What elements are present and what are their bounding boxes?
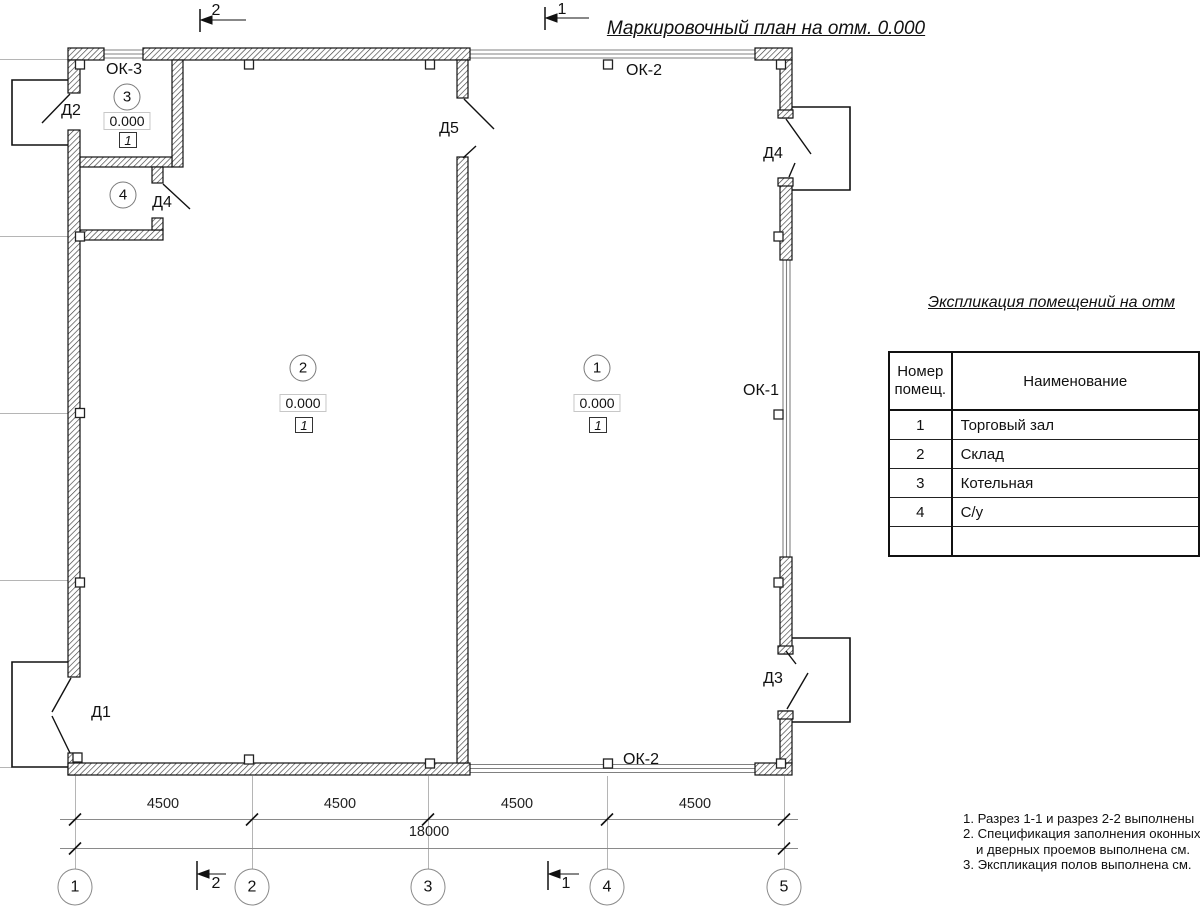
column-marker [774,410,783,419]
table-title: Экспликация помещений на отм [928,294,1175,312]
column-marker [774,232,783,241]
section-1-top-label: 1 [558,1,567,19]
wall-segment [755,48,792,60]
column-marker [73,753,82,762]
wall-segment [172,60,183,167]
door-d5-swing [463,146,476,158]
room-name-cell: Склад [952,440,1199,469]
column-marker [774,578,783,587]
door-label-d5: Д5 [439,120,459,138]
room-name-cell: С/у [952,498,1199,527]
window-ok2-top [470,50,755,58]
header-number-line2: помещ. [894,381,946,398]
door-d4-swing [786,119,811,154]
section-2-top-label: 2 [212,2,221,20]
door-jamb [778,646,793,654]
window-label-ok2-bottom: ОК-2 [623,751,659,769]
wall-segment [780,557,792,654]
section-1-bottom-arrowhead [549,870,560,878]
note-line: 1. Разрез 1-1 и разрез 2-2 выполнены [963,811,1200,826]
door-jamb [778,110,793,118]
room-num-cell: 3 [889,469,952,498]
table-row: 2 Склад [889,440,1199,469]
section-2-bottom-label: 2 [212,875,221,893]
drawing-title: Маркировочный план на отм. 0.000 [607,18,925,40]
table-header-row: Номерпомещ. Наименование [889,352,1199,410]
room-1-number: 1 [584,355,611,382]
wall-segment [80,157,172,167]
wall-segment [152,218,163,230]
window-ok3 [104,50,143,58]
door-label-d2: Д2 [61,102,81,120]
wall-segment [457,60,468,98]
window-label-ok2-top: ОК-2 [626,62,662,80]
column-marker [777,60,786,69]
door-swings [42,94,811,753]
room-2-elevation: 0.000 [279,394,326,412]
section-2-bottom-arrowhead [198,870,209,878]
note-line: 3. Экспликация полов выполнена см. [963,857,1200,872]
note-line: 2. Спецификация заполнения оконных [963,826,1200,841]
dim-4500-4: 4500 [679,796,711,812]
header-number-line1: Номер [897,363,943,380]
door-label-d4: Д4 [763,145,783,163]
porch-d2 [12,80,68,145]
room-2-number: 2 [290,355,317,382]
table-header-number: Номерпомещ. [889,352,952,410]
column-marker [245,60,254,69]
column-marker [76,60,85,69]
notes-block: 1. Разрез 1-1 и разрез 2-2 выполнены 2. … [963,811,1200,873]
column-marker [604,60,613,69]
section-marks [197,7,589,890]
porches [12,80,850,767]
column-marker [76,232,85,241]
porch-d1 [12,662,68,767]
door-d1-swing [52,716,70,753]
porch-d4 [792,107,850,190]
wall-segment [80,230,163,240]
table-row: 1 Торговый зал [889,410,1199,440]
dim-total-18000: 18000 [409,824,449,840]
wall-segment [780,178,792,260]
table-empty-row [889,527,1199,557]
window-label-ok3: ОК-3 [106,61,142,79]
dim-4500-3: 4500 [501,796,533,812]
grid-lines [0,60,785,871]
room-3-elevation: 0.000 [103,112,150,130]
room-num-cell: 4 [889,498,952,527]
wall-segment [68,48,104,60]
door-label-d3: Д3 [763,670,783,688]
section-1-bottom-label: 1 [562,875,571,893]
section-2-top-arrowhead [201,16,212,24]
column-marker [604,759,613,768]
wall-segment [68,763,470,775]
door-jamb [778,178,793,186]
empty-cell [952,527,1199,557]
door-jamb [778,711,793,719]
column-marker [426,759,435,768]
room-name-cell: Торговый зал [952,410,1199,440]
wall-segment [143,48,470,60]
windows [104,50,790,773]
door-label-d1: Д1 [91,704,111,722]
section-1-top-arrowhead [546,14,557,22]
note-line-continuation: и дверных проемов выполнена см. [976,842,1200,857]
room-num-cell: 1 [889,410,952,440]
column-marker [245,755,254,764]
porch-d3 [792,638,850,722]
room-schedule-table: Номерпомещ. Наименование 1 Торговый зал … [888,351,1200,557]
column-marker [76,578,85,587]
wall-segment [68,130,80,677]
door-d5-swing [464,99,494,129]
room-name-cell: Котельная [952,469,1199,498]
column-marker [777,759,786,768]
wall-segment [152,167,163,183]
column-marker [76,409,85,418]
table-row: 3 Котельная [889,469,1199,498]
room-3-number: 3 [114,84,141,111]
door-d4-swing [789,163,795,177]
wall-segment [457,157,468,763]
drawing-sheet: { "title": "Маркировочный план на отм. 0… [0,0,1200,900]
table-header-name: Наименование [952,352,1199,410]
room-4-number: 4 [110,182,137,209]
room-2-floor-type: 1 [295,417,313,433]
empty-cell [889,527,952,557]
door-d3-swing [787,673,808,709]
door-label-d4-wc: Д4 [152,194,172,212]
room-1-floor-type: 1 [589,417,607,433]
table-row: 4 С/у [889,498,1199,527]
room-1-elevation: 0.000 [573,394,620,412]
walls [68,48,793,775]
dim-4500-2: 4500 [324,796,356,812]
dim-4500-1: 4500 [147,796,179,812]
wall-segment [755,763,792,775]
window-ok1 [783,260,790,557]
window-label-ok1: ОК-1 [743,382,779,400]
room-3-floor-type: 1 [119,132,137,148]
column-marker [426,60,435,69]
room-num-cell: 2 [889,440,952,469]
door-d1-swing [52,678,71,712]
